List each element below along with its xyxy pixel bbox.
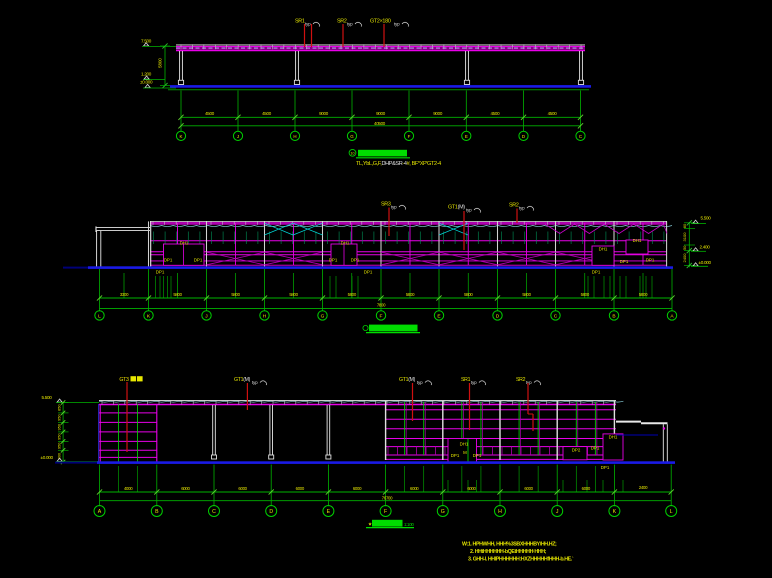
svg-text:5800: 5800: [348, 292, 357, 297]
svg-text:5800: 5800: [231, 292, 240, 297]
svg-text:2. HHtHHHHHH-bQEtHHHHH·HHH;: 2. HHtHHHHHH-bQEtHHHHH·HHH;: [470, 549, 547, 555]
svg-text:3100: 3100: [682, 232, 687, 242]
svg-text:D: D: [496, 313, 500, 319]
svg-text:DP1: DP1: [351, 258, 360, 263]
svg-text:J: J: [556, 509, 559, 515]
svg-text:D: D: [269, 509, 273, 515]
svg-text:DH1: DH1: [599, 247, 608, 252]
svg-text:typ: typ: [394, 22, 400, 27]
svg-text:C: C: [579, 134, 582, 139]
svg-text:K: K: [180, 134, 183, 139]
svg-text:B: B: [155, 509, 159, 515]
svg-text:5800: 5800: [464, 292, 473, 297]
svg-text:9000: 9000: [433, 111, 443, 116]
svg-text:GT1(M): GT1(M): [448, 205, 465, 211]
svg-text:E: E: [327, 509, 331, 515]
svg-text:2.400: 2.400: [700, 245, 711, 250]
svg-text:6000: 6000: [238, 486, 247, 491]
svg-text:4500: 4500: [205, 111, 215, 116]
svg-text:5.500: 5.500: [42, 395, 53, 400]
svg-text:SR2: SR2: [337, 19, 347, 25]
svg-text:typ: typ: [526, 380, 532, 385]
svg-text:M: M: [463, 450, 467, 455]
svg-text:H: H: [263, 313, 267, 319]
svg-text:SR2: SR2: [516, 377, 526, 383]
svg-text:6000: 6000: [353, 486, 362, 491]
svg-text:D: D: [522, 134, 525, 139]
svg-text:C: C: [212, 509, 216, 515]
svg-text:80: 80: [683, 224, 687, 228]
svg-text:4500: 4500: [548, 111, 558, 116]
svg-text:G: G: [441, 509, 445, 515]
svg-text:1:100: 1:100: [404, 522, 414, 527]
svg-text:W:1. HPHWHH, HHH%3SBXHHHBY/HH.: W:1. HPHWHH, HHH%3SBXHHHBY/HH.HZ;: [462, 542, 557, 548]
svg-text:typ: typ: [347, 22, 353, 27]
svg-text:DP1: DP1: [194, 258, 203, 263]
svg-text:E: E: [437, 313, 440, 319]
svg-text:SR1: SR1: [461, 377, 471, 383]
svg-text:3. GHH-l. HHlPHHHHHH:HXZHHHHHf: 3. GHH-l. HHlPHHHHHH:HXZHHHHHfHHH-b.HE.`: [468, 557, 574, 563]
svg-text:SR2: SR2: [509, 203, 519, 209]
svg-text:DH1: DH1: [460, 442, 469, 447]
svg-text:850: 850: [57, 405, 61, 411]
svg-text:H: H: [293, 134, 296, 139]
svg-text:2400: 2400: [682, 253, 687, 263]
svg-text:6000: 6000: [410, 486, 419, 491]
svg-text:DH1: DH1: [633, 238, 642, 243]
svg-text:typ: typ: [519, 206, 525, 211]
svg-text:10: 10: [351, 152, 355, 156]
svg-text:F: F: [384, 509, 387, 515]
svg-text:950: 950: [57, 414, 61, 420]
svg-text:DP1: DP1: [451, 453, 460, 458]
svg-text:9000: 9000: [376, 111, 386, 116]
svg-text:J: J: [237, 134, 239, 139]
svg-text:950: 950: [57, 443, 61, 449]
svg-text:DP1: DP1: [646, 258, 655, 263]
svg-text:DP2: DP2: [572, 448, 581, 453]
svg-text:DP1: DP1: [156, 269, 165, 274]
svg-text:C: C: [554, 313, 558, 319]
svg-text:typ: typ: [417, 380, 423, 385]
svg-text:5800: 5800: [289, 292, 298, 297]
svg-text:6000: 6000: [467, 486, 476, 491]
svg-text:5800: 5800: [639, 292, 648, 297]
svg-text:F: F: [408, 134, 411, 139]
svg-text:DP1: DP1: [473, 453, 482, 458]
svg-text:950: 950: [57, 424, 61, 430]
svg-text:2400: 2400: [639, 485, 648, 490]
svg-text:40500: 40500: [374, 121, 386, 126]
svg-text:3300: 3300: [120, 292, 129, 297]
svg-text:H: H: [498, 509, 502, 515]
svg-text:G: G: [350, 134, 354, 139]
svg-text:6000: 6000: [582, 486, 591, 491]
svg-text:5800: 5800: [158, 58, 163, 68]
svg-text:L: L: [98, 313, 101, 319]
svg-text:DP1: DP1: [601, 465, 610, 470]
svg-text:E: E: [465, 134, 468, 139]
svg-text:6000: 6000: [524, 486, 533, 491]
svg-text:6000: 6000: [296, 486, 305, 491]
svg-text:7800: 7800: [377, 302, 386, 307]
svg-text:4500: 4500: [490, 111, 500, 116]
svg-text:DP1: DP1: [164, 258, 173, 263]
svg-text:DH1: DH1: [180, 241, 189, 246]
svg-text:±0.000: ±0.000: [41, 455, 54, 460]
svg-text:F: F: [380, 313, 383, 319]
svg-text:GT2×180: GT2×180: [370, 19, 391, 25]
svg-text:9000: 9000: [319, 111, 329, 116]
svg-text:5800: 5800: [173, 292, 182, 297]
svg-text:GT1(M): GT1(M): [234, 377, 251, 383]
svg-text:SR3: SR3: [381, 202, 391, 208]
svg-text:A: A: [98, 509, 102, 515]
svg-text:5.500: 5.500: [701, 216, 712, 221]
svg-text:TL,YbL,G,F,DHP&SR-4#, BF*XP'GT: TL,YbL,G,F,DHP&SR-4#, BF*XP'GT2-4: [356, 161, 441, 167]
svg-text:DP1: DP1: [364, 269, 373, 274]
svg-text:5800: 5800: [581, 292, 590, 297]
svg-text:typ: typ: [252, 380, 258, 385]
svg-text:typ: typ: [391, 205, 397, 210]
svg-text:DP1: DP1: [591, 445, 600, 450]
svg-text:4000: 4000: [124, 486, 133, 491]
svg-text:4500: 4500: [262, 111, 272, 116]
svg-text:DH1: DH1: [341, 241, 350, 246]
svg-text:GT1(M): GT1(M): [399, 377, 416, 383]
svg-text:G: G: [321, 313, 325, 319]
svg-text:typ: typ: [466, 208, 472, 213]
svg-text:6000: 6000: [181, 486, 190, 491]
svg-text:typ: typ: [305, 22, 311, 27]
svg-text:SR1: SR1: [295, 19, 305, 25]
svg-text:950: 950: [57, 433, 61, 439]
svg-text:DP1: DP1: [620, 259, 629, 264]
svg-text:5800: 5800: [522, 292, 531, 297]
svg-text:B: B: [612, 313, 615, 319]
svg-text:50: 50: [683, 246, 687, 250]
svg-text:±0.000: ±0.000: [140, 80, 153, 85]
svg-text:L: L: [670, 509, 673, 515]
svg-text:K: K: [613, 509, 617, 515]
svg-text:5800: 5800: [406, 292, 415, 297]
svg-text:DP1: DP1: [592, 269, 601, 274]
svg-text:DP1: DP1: [329, 258, 338, 263]
svg-text:typ: typ: [471, 380, 477, 385]
svg-text:±0.000: ±0.000: [699, 260, 712, 265]
svg-text:76700: 76700: [382, 495, 393, 500]
